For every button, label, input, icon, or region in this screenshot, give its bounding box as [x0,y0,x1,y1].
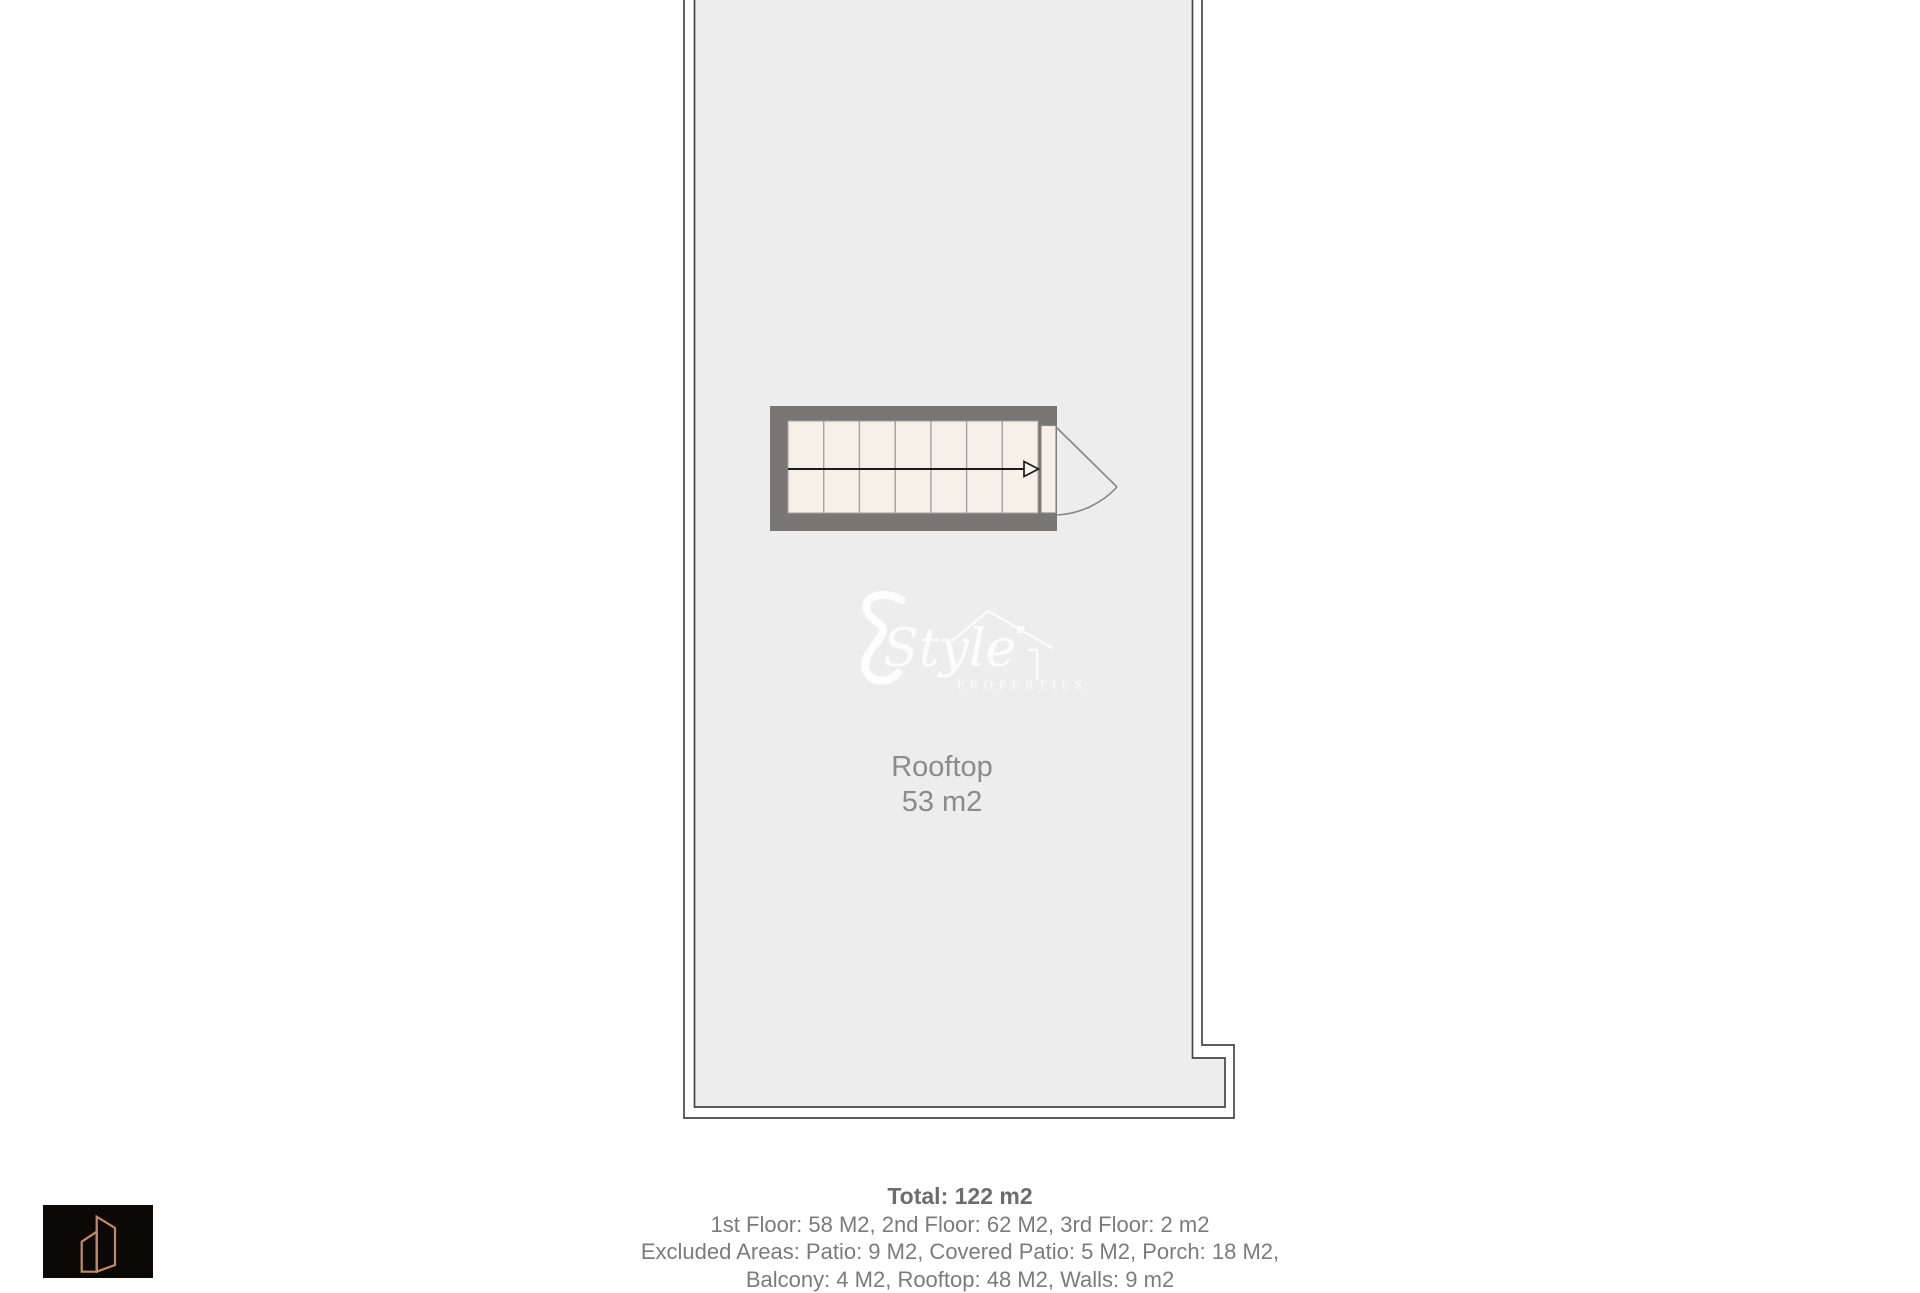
watermark-chimney-icon [1017,626,1024,633]
brand-logo [43,1205,153,1278]
area-summary: Total: 122 m2 1st Floor: 58 M2, 2nd Floo… [0,1183,1920,1293]
page: { "colors": { "plan_fill": "#ededed", "w… [0,0,1920,1280]
room-area: 53 m2 [692,785,1192,820]
stair-well [788,421,1038,513]
plan-fill [695,0,1226,1107]
summary-total: Total: 122 m2 [0,1183,1920,1211]
summary-excluded-line1: Excluded Areas: Patio: 9 M2, Covered Pat… [0,1238,1920,1266]
brand-logo-buildings-icon [43,1205,153,1278]
room-label: Rooftop 53 m2 [692,750,1192,820]
floor-plan-canvas [0,0,1920,1280]
room-name: Rooftop [692,750,1192,785]
summary-excluded-line2: Balcony: 4 M2, Rooftop: 48 M2, Walls: 9 … [0,1266,1920,1293]
door-threshold [1041,426,1056,514]
summary-floors: 1st Floor: 58 M2, 2nd Floor: 62 M2, 3rd … [0,1211,1920,1239]
